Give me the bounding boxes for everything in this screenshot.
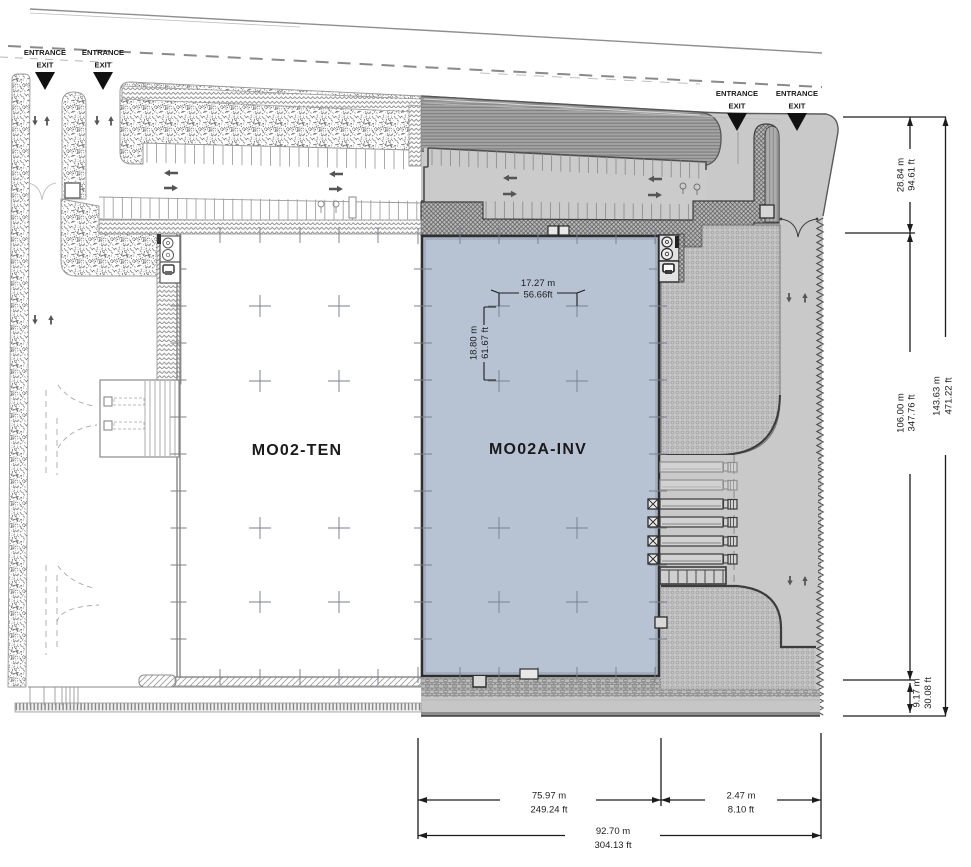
- svg-text:ENTRANCE: ENTRANCE: [716, 89, 758, 98]
- svg-text:9.17 m: 9.17 m: [912, 678, 923, 707]
- svg-text:ENTRANCE: ENTRANCE: [24, 48, 66, 57]
- svg-text:61.67 ft: 61.67 ft: [480, 327, 491, 359]
- svg-text:94.61 ft: 94.61 ft: [907, 159, 918, 191]
- svg-text:ENTRANCE: ENTRANCE: [82, 48, 124, 57]
- svg-text:ENTRANCE: ENTRANCE: [776, 89, 818, 98]
- svg-text:17.27 m: 17.27 m: [521, 278, 555, 289]
- svg-text:EXIT: EXIT: [95, 61, 112, 70]
- svg-text:304.13 ft: 304.13 ft: [595, 840, 632, 851]
- svg-text:18.80 m: 18.80 m: [469, 326, 480, 360]
- svg-text:75.97 m: 75.97 m: [532, 791, 566, 802]
- svg-text:92.70 m: 92.70 m: [596, 826, 630, 837]
- svg-text:56.66ft: 56.66ft: [523, 290, 552, 301]
- svg-text:471.22 ft: 471.22 ft: [944, 377, 955, 414]
- svg-text:MO02A-INV: MO02A-INV: [489, 441, 587, 458]
- svg-text:EXIT: EXIT: [729, 102, 746, 111]
- svg-text:106.00 m: 106.00 m: [896, 393, 907, 433]
- svg-text:143.63 m: 143.63 m: [932, 376, 943, 416]
- svg-text:8.10 ft: 8.10 ft: [728, 805, 755, 816]
- svg-text:347.76 ft: 347.76 ft: [907, 394, 918, 431]
- svg-text:28.84 m: 28.84 m: [896, 158, 907, 192]
- svg-text:EXIT: EXIT: [37, 61, 54, 70]
- svg-text:MO02-TEN: MO02-TEN: [252, 442, 343, 459]
- svg-text:249.24 ft: 249.24 ft: [531, 805, 568, 816]
- svg-text:2.47 m: 2.47 m: [726, 791, 755, 802]
- svg-text:EXIT: EXIT: [789, 102, 806, 111]
- svg-text:30.08 ft: 30.08 ft: [923, 677, 934, 709]
